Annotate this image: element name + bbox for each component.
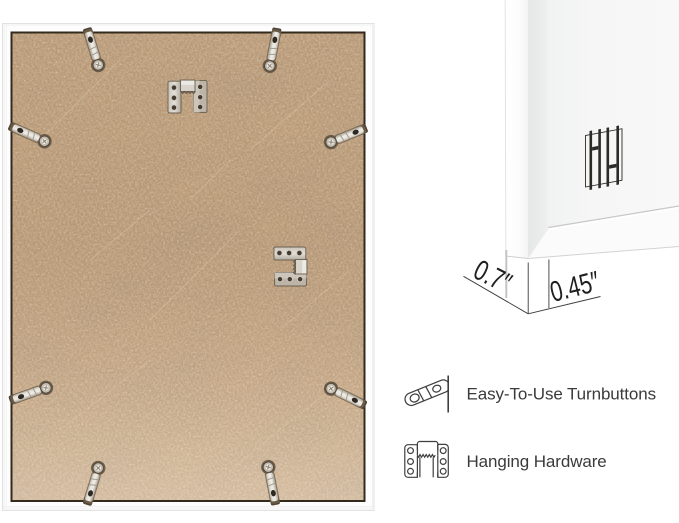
svg-text:Hanging Hardware: Hanging Hardware [467, 452, 607, 471]
svg-text:Easy-To-Use Turnbuttons: Easy-To-Use Turnbuttons [467, 385, 657, 404]
svg-text:0.45″: 0.45″ [547, 266, 603, 309]
svg-text:0.7″: 0.7″ [468, 254, 516, 299]
